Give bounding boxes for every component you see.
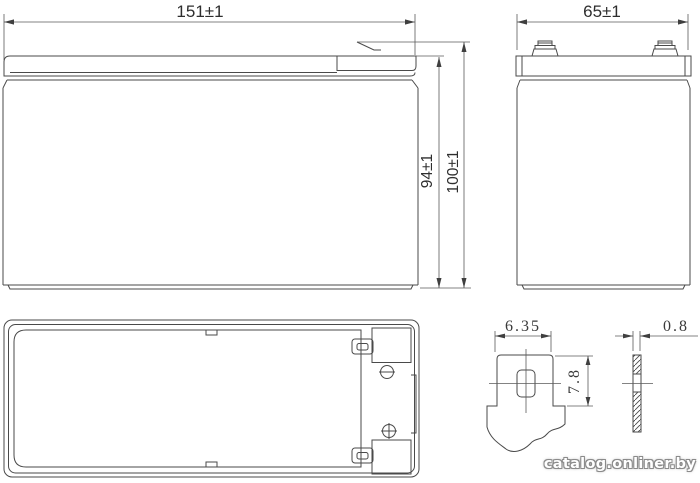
plus-terminal-icon	[381, 423, 397, 439]
side-terminal-left	[532, 41, 558, 56]
side-terminal-right	[652, 41, 678, 56]
dim-94-label: 94±1	[419, 154, 436, 188]
dim-65-label: 65±1	[583, 2, 621, 21]
front-view: 151±1 94±1	[3, 2, 471, 289]
terminal-thickness-detail: 0.8	[615, 318, 698, 432]
dim-width-151: 151±1	[4, 2, 415, 60]
dim-terminal-thickness: 0.8	[615, 318, 698, 351]
dim-terminal-width: 6.35	[495, 318, 551, 352]
side-body-outline	[517, 80, 690, 289]
dim-terminal-height: 7.8	[555, 356, 593, 406]
terminal-tab-outline	[487, 349, 565, 451]
terminal-front-detail: 6.35 7.8	[487, 318, 593, 451]
dim-100-label: 100±1	[445, 151, 462, 194]
terminal-section-strip	[622, 355, 653, 432]
top-view	[4, 320, 419, 477]
dim-08-label: 0.8	[663, 318, 689, 335]
front-lid-outline	[4, 42, 416, 76]
dim-78-label: 7.8	[566, 368, 583, 394]
side-lid-outline	[516, 56, 691, 76]
dim-height-94: 94±1	[416, 56, 444, 288]
side-view: 65±1	[516, 2, 691, 289]
dim-635-label: 6.35	[505, 318, 541, 335]
battery-dimension-drawing: 151±1 94±1	[0, 0, 700, 483]
watermark-text: catalog.onliner.by	[544, 456, 696, 472]
dim-151-label: 151±1	[176, 2, 223, 21]
dim-height-100: 100±1	[357, 42, 471, 288]
front-body-outline	[3, 80, 418, 289]
drawing-svg: 151±1 94±1	[0, 0, 700, 483]
minus-terminal-icon	[379, 366, 395, 379]
